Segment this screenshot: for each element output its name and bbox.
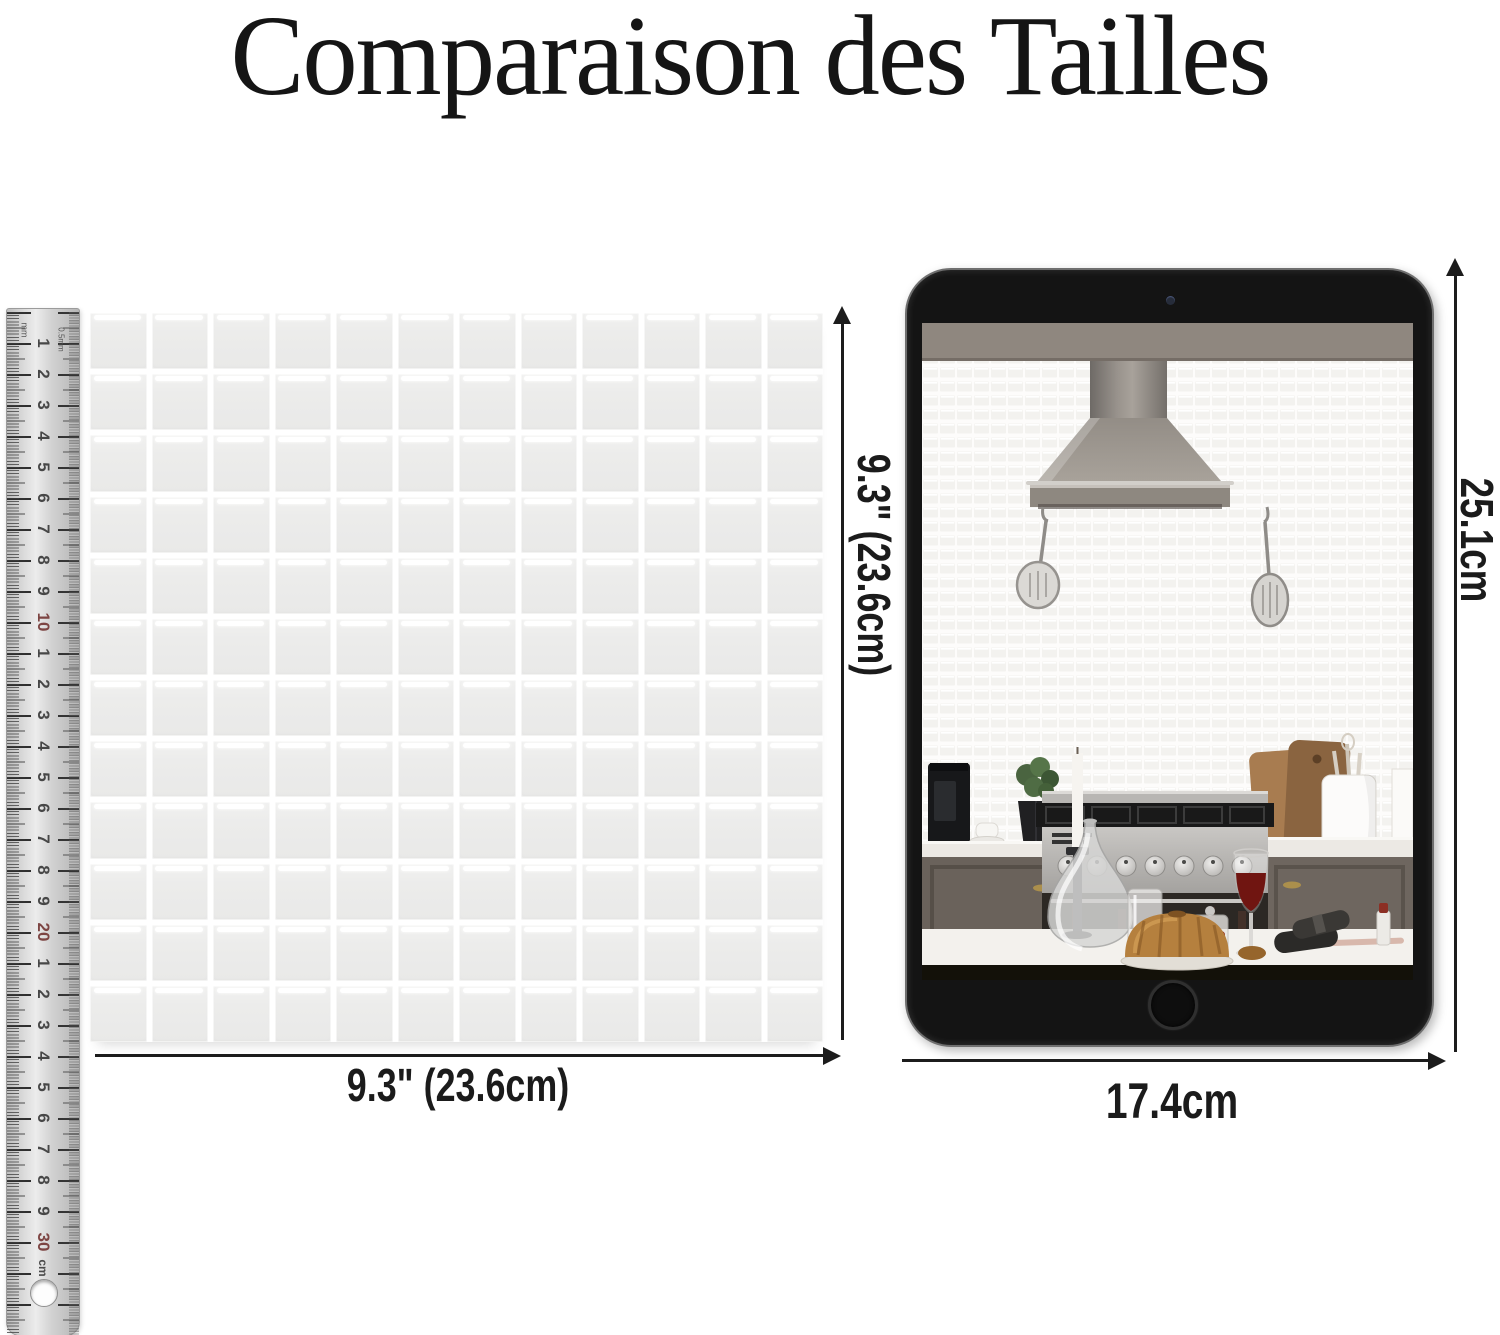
mosaic-tile	[767, 741, 824, 797]
size-comparison-graphic: Comparaison des Tailles mm 0.5mm 1234567…	[0, 0, 1500, 1335]
ruler-number: 7	[33, 834, 53, 843]
mosaic-tile	[398, 741, 455, 797]
mosaic-tile	[90, 864, 147, 920]
mosaic-tile	[459, 680, 516, 736]
mosaic-tile	[459, 497, 516, 553]
mosaic-tile	[767, 986, 824, 1042]
mosaic-tile	[275, 558, 332, 614]
mosaic-tile	[644, 374, 701, 430]
mosaic-tile	[152, 619, 209, 675]
mosaic-tile	[582, 864, 639, 920]
mosaic-tile	[644, 680, 701, 736]
tile-width-arrow	[95, 1054, 827, 1057]
mosaic-tile	[521, 558, 578, 614]
mosaic-tile	[398, 925, 455, 981]
mosaic-tile	[152, 497, 209, 553]
ruler-number: 1	[33, 958, 53, 967]
mosaic-tile	[767, 374, 824, 430]
mosaic-tile	[521, 986, 578, 1042]
tile-height-arrowhead-icon	[833, 306, 851, 324]
ruler-number: 8	[33, 865, 53, 874]
tile-sheet	[90, 313, 823, 1042]
tile-height-arrow	[841, 320, 844, 1040]
mosaic-tile	[336, 497, 393, 553]
soffit	[922, 323, 1413, 361]
ruler-number: 20	[33, 923, 53, 942]
ruler-number: 6	[33, 493, 53, 502]
tablet-camera-icon	[1166, 296, 1175, 305]
ruler-unit-label: cm	[36, 1259, 50, 1276]
mosaic-tile	[644, 802, 701, 858]
mosaic-tile	[705, 680, 762, 736]
page-title: Comparaison des Tailles	[23, 0, 1478, 122]
ruler-mm-label: mm	[20, 323, 30, 338]
mosaic-tile	[644, 986, 701, 1042]
tablet-home-button	[1148, 980, 1198, 1030]
ruler-number: 6	[33, 1113, 53, 1122]
mosaic-tile	[275, 619, 332, 675]
mosaic-tile	[644, 313, 701, 369]
ruler-number: 30	[33, 1233, 53, 1252]
mosaic-tile	[90, 374, 147, 430]
mosaic-tile	[705, 435, 762, 491]
tablet-height-label: 25.1cm	[1450, 478, 1500, 603]
mosaic-tile	[459, 435, 516, 491]
mosaic-tile	[152, 864, 209, 920]
mosaic-tile	[152, 435, 209, 491]
mosaic-tile	[152, 313, 209, 369]
mosaic-tile	[336, 619, 393, 675]
ruler-number: 3	[33, 400, 53, 409]
mosaic-tile	[705, 802, 762, 858]
mosaic-tile	[90, 741, 147, 797]
mosaic-tile	[275, 986, 332, 1042]
ruler-number: 2	[33, 989, 53, 998]
mosaic-tile	[705, 864, 762, 920]
ruler-number: 10	[33, 613, 53, 632]
mosaic-tile	[644, 925, 701, 981]
mosaic-tile	[767, 558, 824, 614]
mosaic-tile	[459, 864, 516, 920]
mosaic-tile	[459, 925, 516, 981]
mosaic-tile	[705, 558, 762, 614]
mosaic-tile	[767, 802, 824, 858]
mosaic-tile	[336, 741, 393, 797]
mosaic-tile	[398, 435, 455, 491]
ruler-number: 1	[33, 338, 53, 347]
mosaic-tile	[582, 741, 639, 797]
mosaic-tile	[213, 802, 270, 858]
mosaic-tile	[582, 680, 639, 736]
mosaic-tile	[398, 619, 455, 675]
mosaic-tile	[336, 435, 393, 491]
mosaic-tile	[582, 374, 639, 430]
mosaic-tile	[767, 313, 824, 369]
ruler-number: 5	[33, 772, 53, 781]
mosaic-tile	[336, 802, 393, 858]
tablet-width-arrowhead-icon	[1428, 1052, 1446, 1070]
ruler-number: 4	[33, 1051, 53, 1060]
mosaic-tile	[275, 864, 332, 920]
mosaic-tile	[152, 925, 209, 981]
mosaic-tile	[213, 864, 270, 920]
mosaic-tile	[336, 680, 393, 736]
mosaic-tile	[582, 497, 639, 553]
mosaic-tile	[398, 497, 455, 553]
mosaic-tile	[90, 925, 147, 981]
mosaic-tile	[459, 986, 516, 1042]
ruler-number: 7	[33, 524, 53, 533]
mosaic-tile	[275, 925, 332, 981]
kitchen-scene	[922, 323, 1413, 980]
mosaic-tile	[152, 802, 209, 858]
mosaic-tile	[644, 619, 701, 675]
mosaic-tile	[767, 680, 824, 736]
mosaic-tile	[767, 435, 824, 491]
mosaic-tile	[398, 864, 455, 920]
mosaic-tile	[213, 680, 270, 736]
tablet-height-arrowhead-icon	[1446, 258, 1464, 276]
tablet-width-arrow	[902, 1059, 1430, 1062]
mosaic-tile	[521, 802, 578, 858]
ruler-hanging-hole	[30, 1279, 58, 1307]
mosaic-tile	[213, 435, 270, 491]
mosaic-tile	[398, 558, 455, 614]
mosaic-tile	[275, 435, 332, 491]
mosaic-tile	[459, 802, 516, 858]
ruler-number: 5	[33, 462, 53, 471]
mosaic-tile	[275, 374, 332, 430]
mosaic-tile	[459, 313, 516, 369]
tablet-width-label: 17.4cm	[1106, 1072, 1238, 1130]
mosaic-tile	[644, 435, 701, 491]
mosaic-tile	[152, 374, 209, 430]
mosaic-tile	[705, 986, 762, 1042]
mosaic-tile	[582, 435, 639, 491]
mosaic-tile	[213, 558, 270, 614]
mosaic-tile	[521, 619, 578, 675]
mosaic-tile	[152, 680, 209, 736]
mosaic-tile	[336, 558, 393, 614]
mosaic-tile	[152, 986, 209, 1042]
ruler: mm 0.5mm 1234567891012345678920123456789…	[6, 308, 80, 1335]
tile-height-label: 9.3" (23.6cm)	[847, 454, 901, 676]
mosaic-tile	[521, 374, 578, 430]
mosaic-tile	[213, 497, 270, 553]
ruler-number: 9	[33, 896, 53, 905]
mosaic-tile	[767, 497, 824, 553]
tile-width-label: 9.3" (23.6cm)	[347, 1058, 569, 1112]
mosaic-tile	[90, 680, 147, 736]
mosaic-tile	[582, 558, 639, 614]
ruler-number: 1	[33, 648, 53, 657]
tablet-screen	[922, 323, 1413, 980]
ruler-number: 2	[33, 369, 53, 378]
mosaic-tile	[275, 802, 332, 858]
mosaic-tile	[213, 986, 270, 1042]
ruler-number: 7	[33, 1144, 53, 1153]
tile-width-arrowhead-icon	[823, 1047, 841, 1065]
mosaic-tile	[90, 802, 147, 858]
mosaic-tile	[767, 925, 824, 981]
mosaic-tile	[459, 558, 516, 614]
mosaic-tile	[398, 802, 455, 858]
ruler-number: 8	[33, 555, 53, 564]
mosaic-tile	[90, 313, 147, 369]
mosaic-tile	[213, 925, 270, 981]
ruler-number: 2	[33, 679, 53, 688]
mosaic-tile	[644, 558, 701, 614]
ruler-number: 6	[33, 803, 53, 812]
mosaic-tile	[521, 435, 578, 491]
mosaic-tile	[398, 986, 455, 1042]
pastry	[1238, 946, 1266, 960]
mosaic-tile	[705, 374, 762, 430]
mosaic-tile	[521, 497, 578, 553]
ruler-number: 9	[33, 1206, 53, 1215]
mosaic-tile	[582, 619, 639, 675]
ruler-number: 4	[33, 431, 53, 440]
ruler-number: 8	[33, 1175, 53, 1184]
mosaic-tile	[152, 741, 209, 797]
mosaic-tile	[275, 680, 332, 736]
mosaic-tile	[459, 619, 516, 675]
mosaic-tile	[644, 741, 701, 797]
mosaic-tile	[582, 313, 639, 369]
mosaic-tile	[705, 497, 762, 553]
mosaic-tile	[705, 313, 762, 369]
mosaic-tile	[398, 374, 455, 430]
mosaic-tile	[275, 313, 332, 369]
ruler-number: 3	[33, 1020, 53, 1029]
mosaic-tile	[459, 741, 516, 797]
mosaic-tile	[213, 741, 270, 797]
mosaic-tile	[398, 680, 455, 736]
mosaic-tile	[336, 986, 393, 1042]
ruler-number: 9	[33, 586, 53, 595]
mosaic-tile	[644, 864, 701, 920]
mosaic-tile	[336, 374, 393, 430]
mosaic-tile	[275, 741, 332, 797]
mosaic-tile	[90, 558, 147, 614]
mosaic-tile	[582, 802, 639, 858]
ruler-number: 4	[33, 741, 53, 750]
mosaic-tile	[213, 374, 270, 430]
mosaic-tile	[90, 986, 147, 1042]
mosaic-tile	[521, 680, 578, 736]
ruler-number: 3	[33, 710, 53, 719]
mosaic-tile	[90, 435, 147, 491]
mosaic-tile	[275, 497, 332, 553]
mosaic-tile	[705, 619, 762, 675]
mosaic-tile	[90, 619, 147, 675]
mosaic-tile	[459, 374, 516, 430]
tablet	[905, 268, 1434, 1047]
mosaic-tile	[152, 558, 209, 614]
mosaic-tile	[521, 864, 578, 920]
mosaic-tile	[705, 741, 762, 797]
mosaic-tile	[705, 925, 762, 981]
mosaic-tile	[398, 313, 455, 369]
mosaic-tile	[767, 619, 824, 675]
mosaic-tile	[213, 619, 270, 675]
mosaic-tile	[582, 986, 639, 1042]
mosaic-tile	[336, 925, 393, 981]
mosaic-tile	[336, 864, 393, 920]
mosaic-tile	[213, 313, 270, 369]
mosaic-tile	[767, 864, 824, 920]
ruler-number: 5	[33, 1082, 53, 1091]
mosaic-tile	[521, 925, 578, 981]
mosaic-tile	[336, 313, 393, 369]
mosaic-tile	[521, 741, 578, 797]
mosaic-tile	[90, 497, 147, 553]
tablet-height-arrow	[1454, 274, 1457, 1052]
ruler-halfmm-label: 0.5mm	[56, 327, 65, 351]
mosaic-tile	[582, 925, 639, 981]
mosaic-tile	[521, 313, 578, 369]
mosaic-tile	[644, 497, 701, 553]
